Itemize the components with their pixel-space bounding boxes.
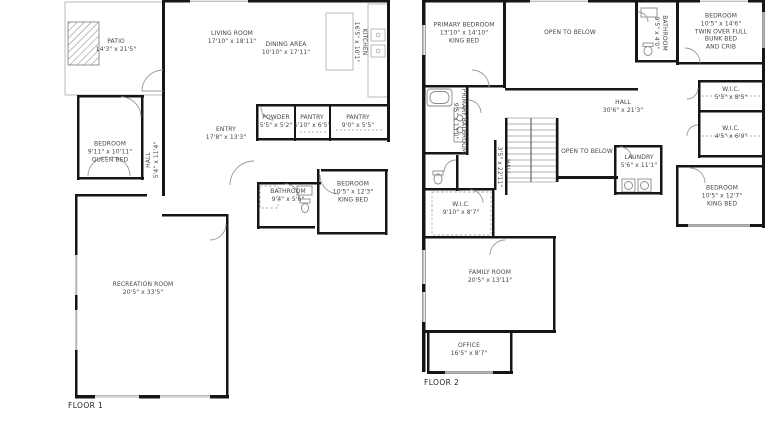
- room-label-hall-f2: HALL30'6" x 21'3": [603, 99, 643, 115]
- room-label-pantry-2: PANTRY9'0" x 5'5": [342, 114, 375, 130]
- room-label-pantry-1: PANTRY5'10" x 6'5": [294, 114, 330, 130]
- room-label-family-room: FAMILY ROOM20'5" x 13'11": [468, 269, 512, 285]
- patio-deck-hatch: [68, 22, 99, 65]
- room-label-bedroom-queen: BEDROOM9'11" x 10'11"QUEEN BED: [88, 140, 132, 163]
- room-label-powder: POWDER5'5" x 5'2": [260, 114, 293, 130]
- dryer-icon: [638, 179, 651, 192]
- wc-toilet-icon: [434, 174, 442, 184]
- room-label-wic-3: W.I.C.9'10" x 8'7": [443, 201, 479, 217]
- windows-group: [75, 0, 764, 399]
- room-label-bedroom-king-f1: BEDROOM10'5" x 12'3"KING BED: [333, 180, 373, 203]
- room-label-entry: ENTRY17'8" x 13'3": [206, 126, 246, 142]
- toilet-icon: [302, 204, 309, 213]
- floor2-label: FLOOR 2: [424, 378, 459, 387]
- room-label-bedroom-king-f2: BEDROOM10'5" x 12'7"KING BED: [702, 184, 742, 207]
- floor-plan-canvas: PATIO14'3" x 21'5" LIVING ROOM17'10" x 1…: [0, 0, 768, 421]
- walls-group: [75, 0, 765, 399]
- bath2-toilet-icon: [644, 47, 652, 56]
- room-label-open-to-below-1: OPEN TO BELOW: [544, 29, 596, 37]
- room-label-patio: PATIO14'3" x 21'5": [96, 38, 136, 54]
- floor1-label: FLOOR 1: [68, 401, 103, 410]
- room-label-wic-1: W.I.C.5'5" x 8'5": [715, 86, 748, 102]
- door-swings-group: [88, 12, 705, 255]
- room-label-bedroom-bunk: BEDROOM10'5" x 14'6"TWIN OVER FULLBUNK B…: [695, 13, 747, 52]
- room-label-bathroom: BATHROOM9'4" x 5'6": [270, 188, 306, 204]
- room-label-hall-f1: HALL5'4" x 11'4": [145, 142, 161, 178]
- room-label-hall-2-f2: HALL3'5" x 22'11": [495, 147, 511, 187]
- room-label-bathroom-f2: BATHROOM9'5" x 4'0": [652, 15, 668, 51]
- stairs-icon: [506, 118, 556, 182]
- room-label-open-to-below-2: OPEN TO BELOW: [561, 148, 613, 156]
- room-label-recreation-room: RECREATION ROOM20'5" x 33'5": [113, 281, 174, 297]
- kitchen-island: [326, 13, 353, 70]
- washer-icon: [622, 179, 635, 192]
- room-label-dining-area: DINING AREA10'10" x 17'11": [262, 41, 310, 57]
- room-label-primary-bedroom: PRIMARY BEDROOM13'10" x 14'10"KING BED: [433, 21, 494, 44]
- room-label-living-room: LIVING ROOM17'10" x 18'11": [208, 30, 256, 46]
- floor-plan-linework: [0, 0, 768, 421]
- room-label-primary-bathroom: PRIMARY BATHROOM9'5" x 13'0": [451, 89, 467, 154]
- room-label-laundry: LAUNDRY5'6" x 11'1": [621, 154, 657, 170]
- room-label-kitchen: KITCHEN16'5" x 10'1": [352, 22, 368, 62]
- room-label-office: OFFICE16'5" x 8'7": [451, 342, 487, 358]
- room-label-wic-2: W.I.C.4'5" x 6'0": [715, 125, 748, 141]
